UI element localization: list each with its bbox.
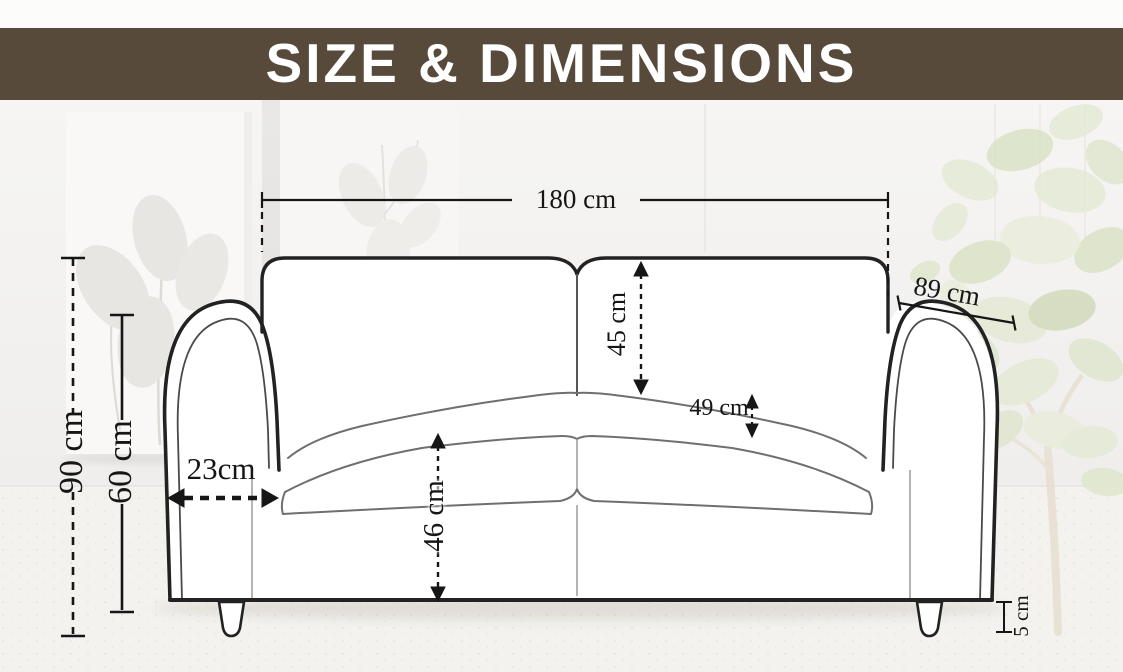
page-title: SIZE & DIMENSIONS — [266, 36, 858, 91]
scene-canvas — [0, 0, 1123, 672]
dimension-label-cushion-thickness: 49 cm — [669, 396, 769, 421]
sofa-leg-right — [917, 602, 942, 636]
header-band: SIZE & DIMENSIONS — [0, 28, 1123, 100]
dimension-label-back-cushion-height: 45 cm — [603, 274, 633, 374]
dimension-label-overall-height: 90 cm — [54, 392, 90, 512]
dimension-label-overall-width: 180 cm — [516, 185, 636, 213]
dimension-label-arm-width: 23cm — [166, 453, 276, 486]
dimension-label-seat-height: 46 cm — [419, 464, 451, 568]
dimension-label-leg-height: 5 cm — [1010, 576, 1034, 656]
sofa-illustration — [155, 258, 1005, 636]
size-dimensions-infographic: 180 cm 89 cm 90 cm 60 cm 23cm 45 cm 49 c… — [0, 0, 1123, 672]
sofa-leg-left — [219, 602, 244, 636]
dimension-label-arm-height: 60 cm — [103, 402, 139, 522]
